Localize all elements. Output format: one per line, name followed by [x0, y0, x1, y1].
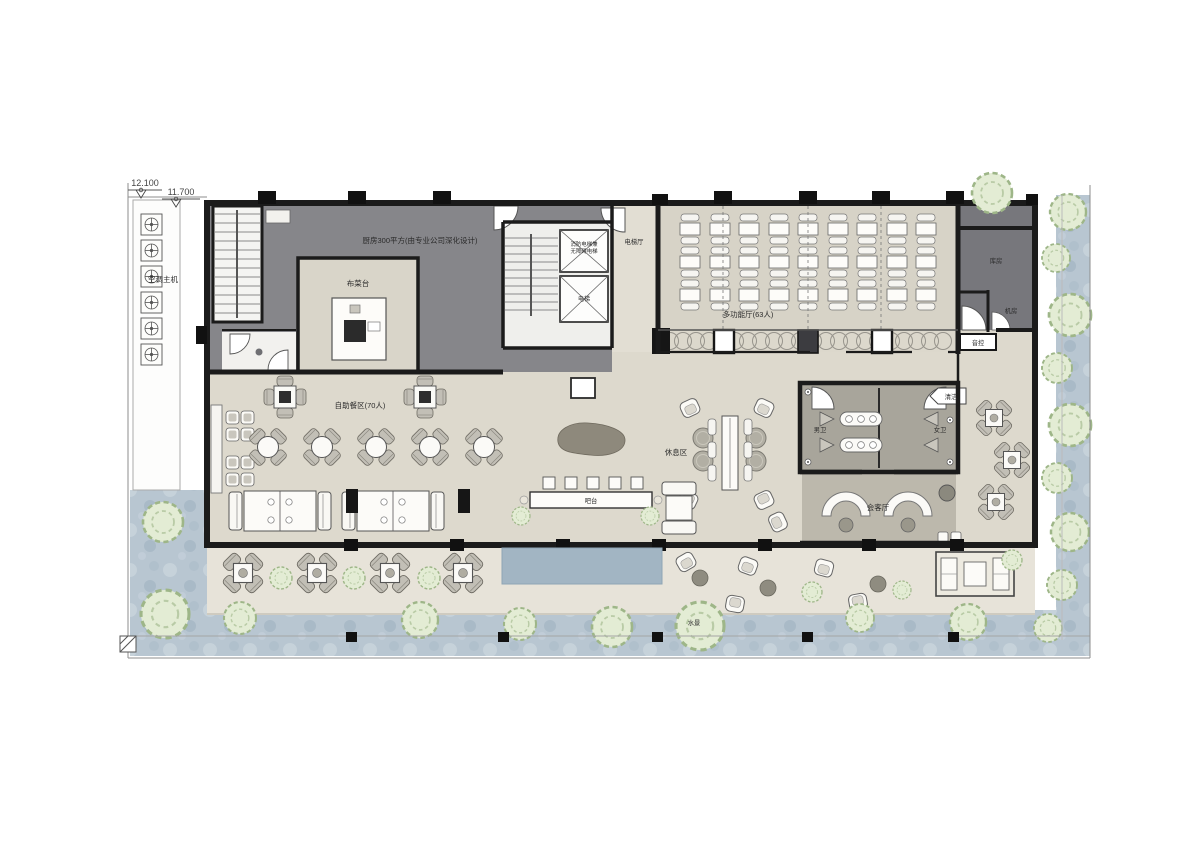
machine-room-label: 机房: [1005, 306, 1018, 315]
serving-counter-label: 布菜台: [347, 278, 370, 288]
cleaning-label: 清洁: [945, 392, 958, 401]
fire-elevator-label-1: 消防电梯兼: [571, 240, 599, 248]
wall-counter: [211, 405, 222, 493]
elevation-lower: 11.700: [168, 187, 195, 197]
corner-marker: [120, 636, 136, 652]
floor-plan-page: 12.100 11.700 空调主机 厨房300平方(由专业公司深化设计) 布菜…: [0, 0, 1200, 850]
lounge-booth: [662, 482, 696, 534]
womens-wc-label: 女卫: [934, 425, 947, 434]
bar-label: 吧台: [585, 496, 598, 505]
reception-label: 会客厅: [867, 502, 890, 512]
fire-elevator-label-2: 无障碍电梯: [571, 247, 599, 255]
buffet-label: 自助餐区(70人): [335, 400, 386, 410]
booth-seating: [229, 491, 331, 531]
ac-unit-label: 空调主机: [148, 274, 178, 284]
water-feature-label: 水景: [688, 618, 701, 627]
elevator-label: 电梯: [578, 295, 590, 303]
hall-label: 多功能厅(63人): [723, 309, 774, 319]
serving-counter-room: [332, 298, 386, 360]
mens-wc-label: 男卫: [814, 426, 827, 434]
elevation-upper: 12.100: [131, 178, 159, 188]
lounge-label: 休息区: [665, 447, 688, 457]
audio-control-label: 音控: [972, 338, 985, 347]
floor-plan-drawing: 12.100 11.700 空调主机 厨房300平方(由专业公司深化设计) 布菜…: [0, 0, 1200, 850]
reflecting-pool: [502, 548, 662, 584]
kitchen-label: 厨房300平方(由专业公司深化设计): [362, 235, 478, 245]
column-box: [571, 378, 595, 398]
storage-label: 库房: [990, 256, 1003, 265]
ac-platform: [133, 200, 180, 490]
elevator-hall-label: 电梯厅: [625, 237, 644, 246]
kitchen-fixture: [266, 210, 290, 223]
